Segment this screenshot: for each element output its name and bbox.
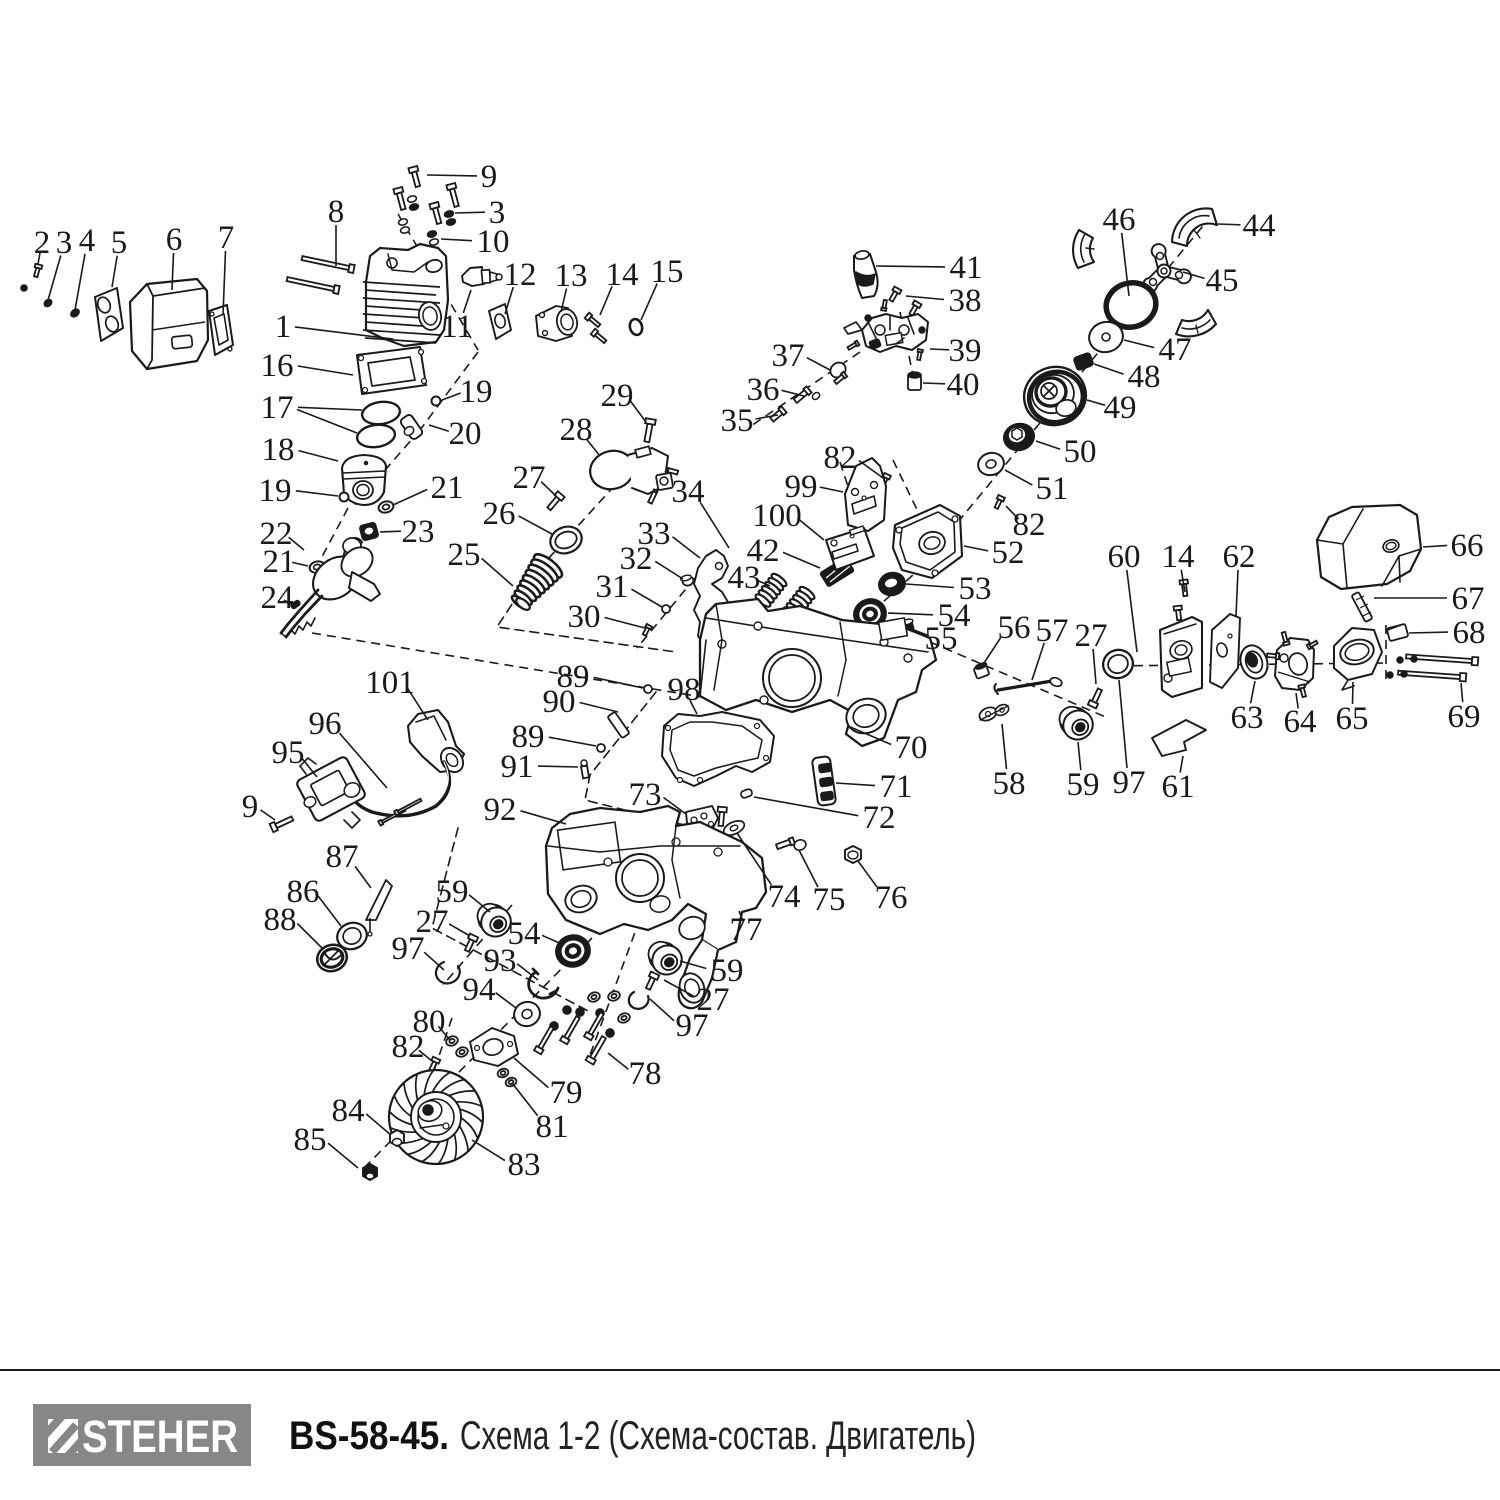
svg-text:13: 13 (555, 258, 588, 294)
svg-text:BS-58-45.: BS-58-45. (289, 1414, 449, 1458)
svg-text:37: 37 (772, 338, 805, 374)
svg-text:4: 4 (79, 223, 96, 259)
svg-text:15: 15 (651, 254, 684, 290)
svg-text:79: 79 (550, 1075, 583, 1111)
svg-text:9: 9 (481, 159, 498, 195)
svg-text:91: 91 (501, 749, 534, 785)
svg-text:85: 85 (294, 1122, 327, 1158)
svg-text:27: 27 (1075, 618, 1108, 654)
svg-text:44: 44 (1243, 208, 1276, 244)
svg-text:19: 19 (460, 374, 493, 410)
svg-text:19: 19 (259, 473, 292, 509)
svg-text:10: 10 (477, 224, 510, 260)
svg-text:92: 92 (484, 792, 517, 828)
svg-text:83: 83 (508, 1147, 541, 1183)
svg-text:96: 96 (309, 706, 342, 742)
svg-text:Схема 1-2 (Схема-состав. Двига: Схема 1-2 (Схема-состав. Двигатель) (460, 1414, 976, 1458)
svg-text:47: 47 (1159, 332, 1192, 368)
svg-text:40: 40 (947, 367, 980, 403)
svg-text:88: 88 (264, 902, 297, 938)
svg-text:82: 82 (392, 1029, 425, 1065)
svg-text:72: 72 (863, 800, 896, 836)
svg-text:28: 28 (560, 412, 593, 448)
svg-text:63: 63 (1231, 700, 1264, 736)
svg-text:34: 34 (672, 474, 705, 510)
svg-text:41: 41 (950, 250, 983, 286)
svg-text:1: 1 (275, 309, 292, 345)
svg-text:7: 7 (218, 220, 235, 256)
svg-text:90: 90 (543, 684, 576, 720)
svg-text:35: 35 (721, 403, 754, 439)
svg-text:98: 98 (668, 672, 701, 708)
svg-text:6: 6 (166, 222, 183, 258)
svg-text:94: 94 (463, 972, 496, 1008)
svg-text:3: 3 (56, 225, 73, 261)
svg-text:30: 30 (568, 599, 601, 635)
svg-text:97: 97 (392, 931, 425, 967)
svg-text:29: 29 (601, 378, 634, 414)
svg-text:77: 77 (730, 912, 763, 948)
svg-text:9: 9 (242, 789, 259, 825)
svg-text:84: 84 (332, 1093, 365, 1129)
svg-text:5: 5 (111, 225, 128, 261)
svg-text:66: 66 (1451, 528, 1484, 564)
svg-text:69: 69 (1448, 699, 1481, 735)
svg-text:25: 25 (448, 537, 481, 573)
svg-text:38: 38 (949, 283, 982, 319)
svg-text:61: 61 (1162, 769, 1195, 805)
svg-text:18: 18 (262, 432, 295, 468)
svg-text:73: 73 (629, 777, 662, 813)
svg-text:101: 101 (365, 665, 415, 701)
svg-text:97: 97 (676, 1008, 709, 1044)
svg-text:59: 59 (1067, 767, 1100, 803)
svg-text:75: 75 (813, 882, 846, 918)
svg-text:26: 26 (483, 496, 516, 532)
svg-text:62: 62 (1223, 539, 1256, 575)
svg-text:20: 20 (449, 416, 482, 452)
svg-text:65: 65 (1336, 701, 1369, 737)
svg-text:2: 2 (34, 225, 51, 261)
svg-text:16: 16 (261, 348, 294, 384)
svg-text:14: 14 (1162, 539, 1195, 575)
svg-text:17: 17 (261, 390, 294, 426)
svg-text:27: 27 (513, 460, 546, 496)
svg-text:21: 21 (431, 470, 464, 506)
svg-text:23: 23 (402, 514, 435, 550)
svg-text:8: 8 (328, 194, 345, 230)
svg-text:100: 100 (752, 498, 802, 534)
svg-text:STEHER: STEHER (82, 1411, 238, 1462)
svg-text:70: 70 (895, 730, 928, 766)
svg-text:68: 68 (1453, 615, 1486, 651)
svg-text:49: 49 (1104, 390, 1137, 426)
svg-text:52: 52 (992, 535, 1025, 571)
svg-text:64: 64 (1284, 704, 1317, 740)
svg-text:58: 58 (993, 766, 1026, 802)
svg-text:55: 55 (925, 621, 958, 657)
svg-text:50: 50 (1064, 434, 1097, 470)
svg-text:56: 56 (998, 610, 1031, 646)
svg-text:78: 78 (629, 1056, 662, 1092)
svg-text:12: 12 (504, 257, 537, 293)
svg-text:21: 21 (263, 544, 296, 580)
svg-text:76: 76 (875, 880, 908, 916)
svg-text:97: 97 (1113, 765, 1146, 801)
svg-text:82: 82 (824, 440, 857, 476)
svg-text:46: 46 (1103, 202, 1136, 238)
svg-text:60: 60 (1108, 539, 1141, 575)
svg-text:81: 81 (536, 1109, 569, 1145)
svg-text:14: 14 (606, 257, 639, 293)
svg-text:39: 39 (949, 333, 982, 369)
svg-text:87: 87 (326, 839, 359, 875)
svg-text:74: 74 (768, 879, 801, 915)
svg-text:24: 24 (261, 580, 294, 616)
svg-text:11: 11 (441, 309, 473, 345)
svg-text:67: 67 (1452, 581, 1485, 617)
svg-text:51: 51 (1036, 471, 1069, 507)
svg-text:45: 45 (1206, 263, 1239, 299)
svg-text:43: 43 (728, 560, 761, 596)
svg-text:57: 57 (1036, 613, 1069, 649)
svg-text:95: 95 (272, 735, 305, 771)
